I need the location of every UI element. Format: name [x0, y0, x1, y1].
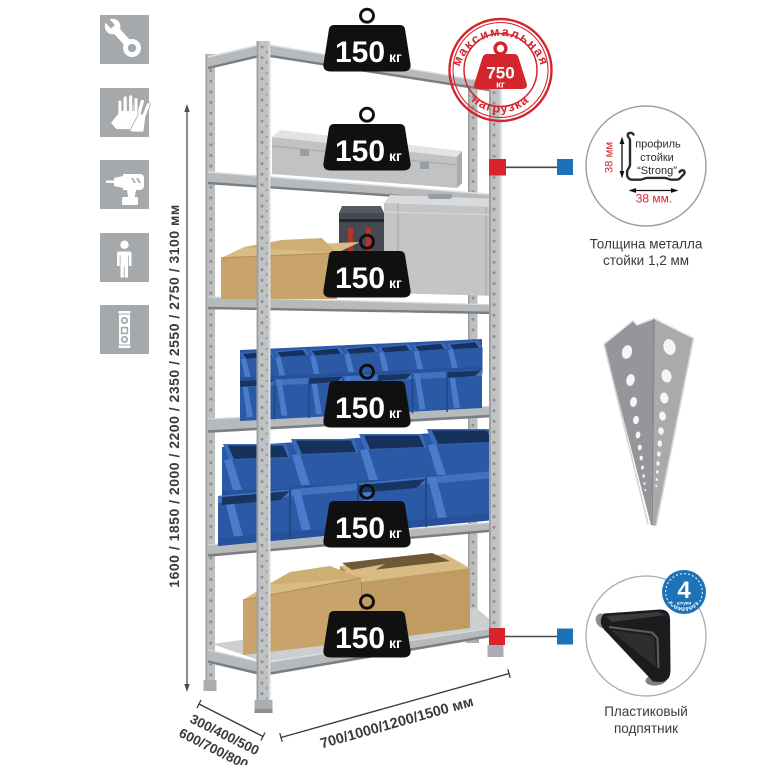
svg-text:38 мм: 38 мм [604, 142, 616, 173]
svg-text:профиль: профиль [635, 139, 681, 151]
svg-text:“Strong”: “Strong” [637, 165, 677, 177]
svg-text:4: 4 [677, 577, 691, 604]
svg-text:Пластиковый: Пластиковый [604, 704, 688, 719]
svg-text:стойки 1,2 мм: стойки 1,2 мм [603, 253, 689, 268]
svg-text:1600 / 1850 / 2000 / 2200 / 23: 1600 / 1850 / 2000 / 2200 / 2350 / 2550 … [166, 204, 182, 587]
svg-text:подпятник: подпятник [614, 721, 678, 736]
svg-text:38 мм.: 38 мм. [636, 192, 673, 206]
svg-text:стойки: стойки [640, 152, 674, 164]
svg-text:кг: кг [496, 80, 505, 91]
svg-text:Толщина металла: Толщина металла [590, 237, 703, 252]
